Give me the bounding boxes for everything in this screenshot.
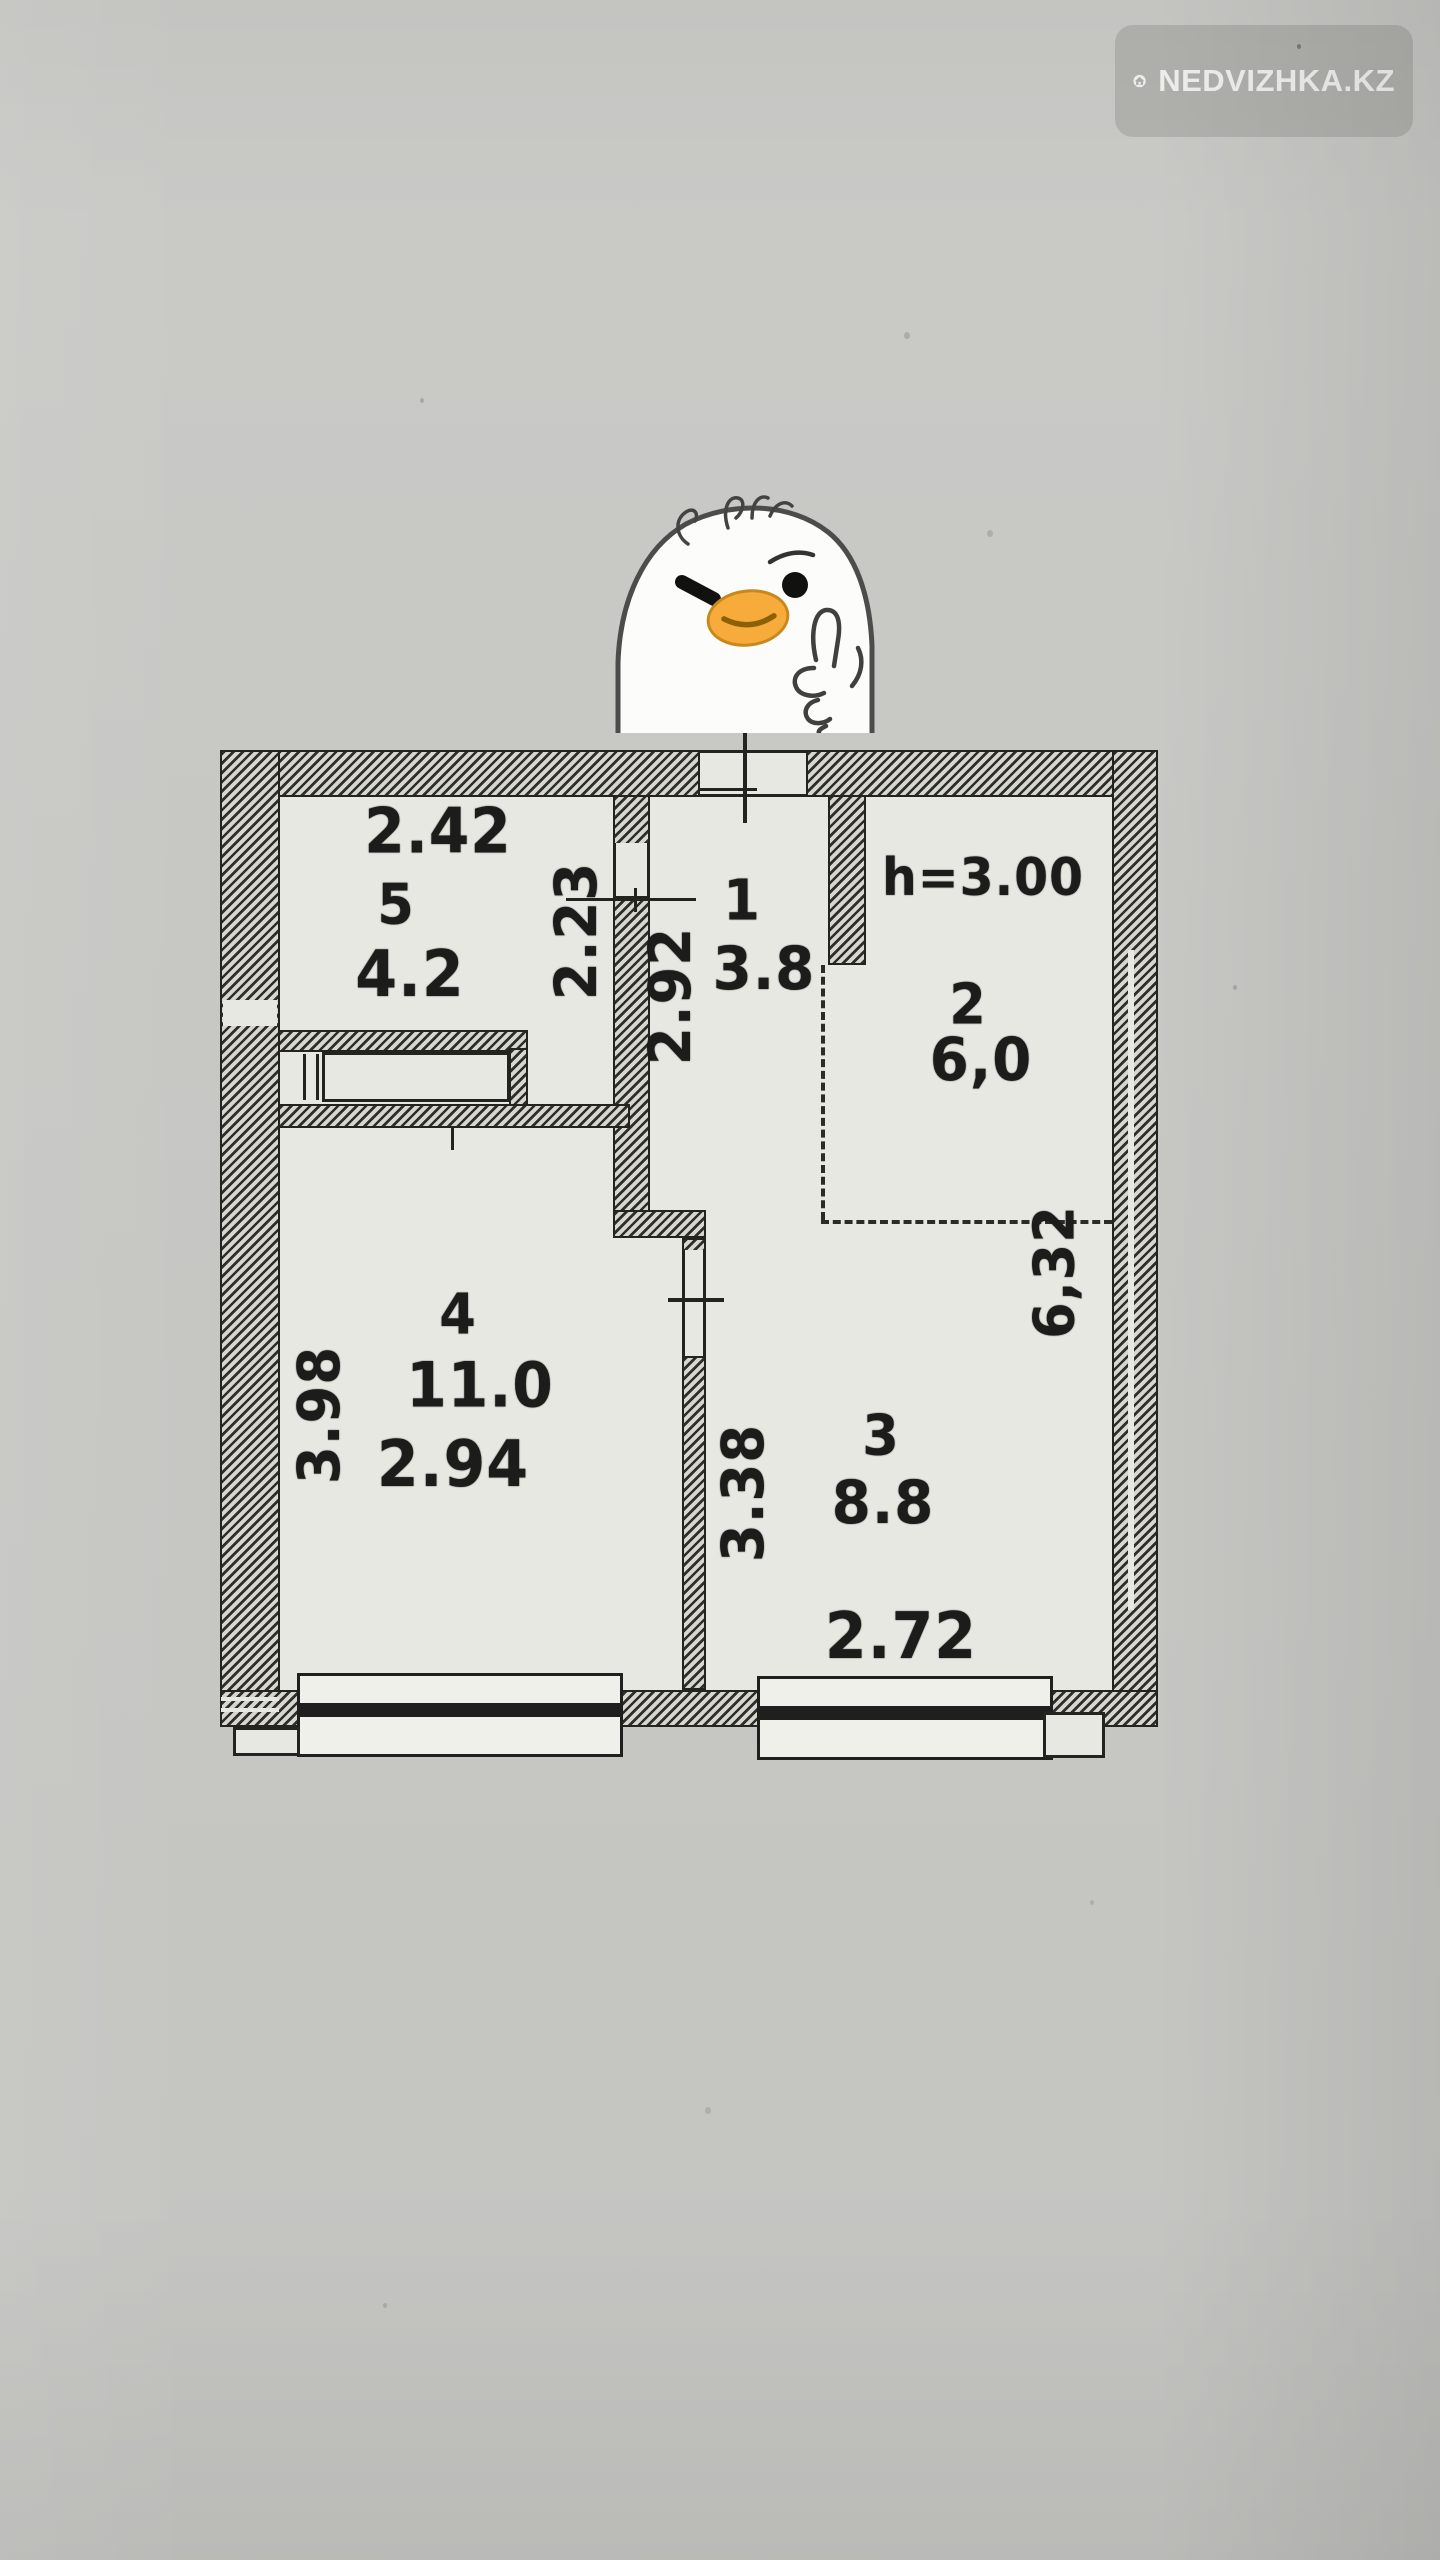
wardrobe — [322, 1052, 510, 1102]
closet-bottom-wall — [278, 1104, 630, 1128]
wardrobe-door-line-b — [316, 1054, 319, 1100]
wall-hall-bottom — [613, 1210, 706, 1238]
room-5-area: 4.2 — [355, 938, 464, 1012]
dim-room4-width: 2.94 — [377, 1428, 529, 1502]
room-5-number: 5 — [377, 873, 415, 938]
dim-room5-width: 2.42 — [364, 795, 512, 868]
door-room4-leaf — [668, 1298, 724, 1302]
window-room3 — [757, 1676, 1053, 1760]
room-1-number: 1 — [723, 869, 761, 934]
wall-right-window-core — [1128, 950, 1134, 1610]
wall-top-right — [806, 750, 1158, 797]
corner-block-bottom-left — [233, 1727, 300, 1756]
closet-top-wall — [278, 1030, 528, 1052]
paper-specks — [1297, 44, 1301, 49]
room-1-area: 3.8 — [713, 934, 816, 1004]
room-4-area: 11.0 — [406, 1349, 554, 1422]
wall-hall-west-upper — [613, 795, 650, 845]
house-icon — [1133, 52, 1146, 110]
dim-223-tick — [634, 888, 637, 912]
dashed-boundary-vertical — [821, 965, 825, 1220]
dim-tick-room4-top — [451, 1128, 454, 1150]
wall-left-bottom-joint-a — [221, 1697, 279, 1701]
room-2-area: 6,0 — [930, 1025, 1033, 1095]
room-4-number: 4 — [439, 1283, 477, 1348]
window-room3-frame — [759, 1706, 1051, 1720]
dim-room5-depth: 2.23 — [542, 862, 610, 1000]
dim-hall-depth: 2.92 — [636, 927, 704, 1065]
duck-thumbs-up-sticker — [600, 488, 888, 733]
dim-room3-depth: 3.38 — [709, 1424, 777, 1562]
window-room4-frame — [299, 1703, 621, 1717]
closet-right-wall — [509, 1048, 528, 1108]
wall-right — [1112, 750, 1158, 1727]
entry-door-tick — [700, 788, 757, 791]
door-room5-opening — [613, 843, 650, 898]
entry-door-leaf — [743, 727, 747, 823]
room-3-area: 8.8 — [832, 1468, 935, 1538]
wall-left — [220, 750, 280, 1727]
wall-room4-room3-lower — [682, 1356, 706, 1690]
corner-block-bottom-right — [1043, 1712, 1105, 1758]
door-room4-opening — [682, 1250, 706, 1356]
watermark-badge: NEDVIZHKA.KZ — [1115, 25, 1413, 137]
duck-eye-right — [782, 572, 808, 598]
dim-room3-width: 2.72 — [825, 1600, 977, 1674]
wall-left-joint — [223, 1000, 277, 1026]
floorplan: 2.42 5 4.2 2.23 1 3.8 2.92 h=3.00 2 6,0 … — [0, 0, 1440, 2560]
dim-room4-depth: 3.98 — [285, 1346, 353, 1484]
photo-canvas: 2.42 5 4.2 2.23 1 3.8 2.92 h=3.00 2 6,0 … — [0, 0, 1440, 2560]
watermark-label: NEDVIZHKA.KZ — [1158, 63, 1395, 99]
room-3-number: 3 — [862, 1404, 900, 1469]
wall-hall-room2 — [828, 795, 866, 965]
wall-left-bottom-joint-b — [221, 1708, 279, 1712]
window-room4 — [297, 1673, 623, 1757]
dim-east-side: 6,32 — [1023, 1205, 1088, 1339]
wall-top-left — [220, 750, 700, 797]
ceiling-height-label: h=3.00 — [882, 848, 1084, 908]
wardrobe-door-line-a — [303, 1054, 306, 1100]
